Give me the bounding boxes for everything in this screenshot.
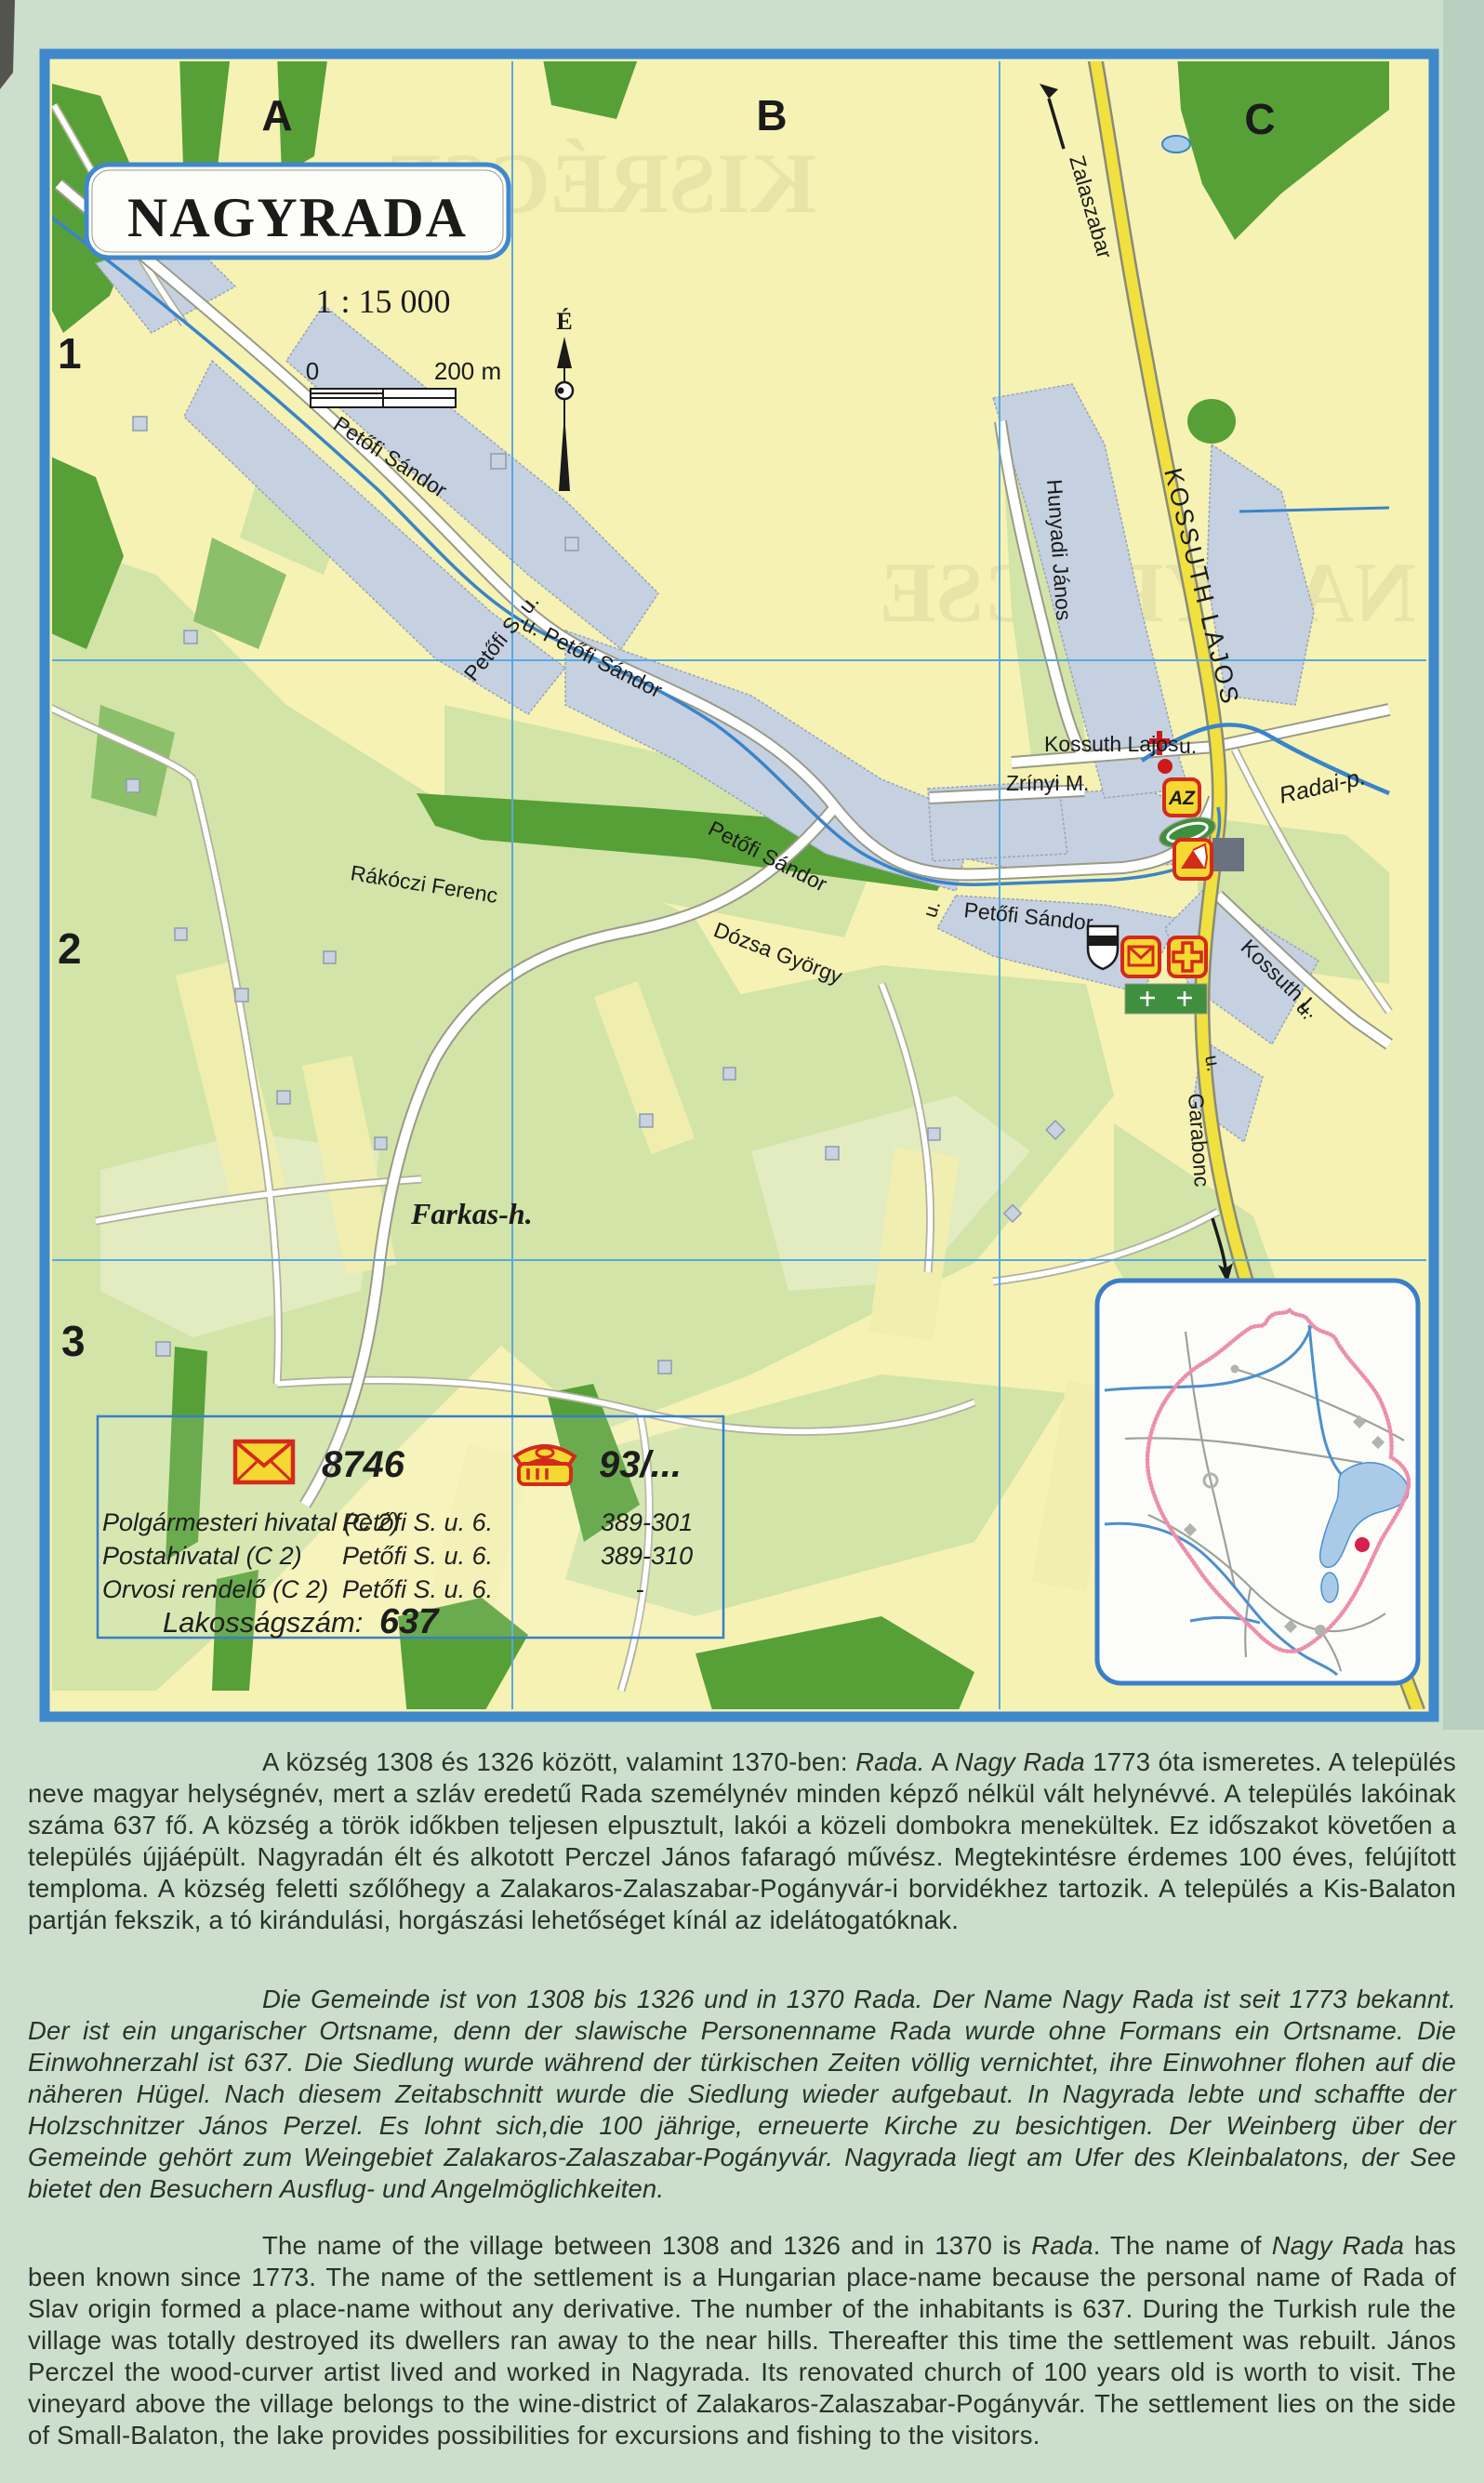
street-label-u-2: u. — [1179, 734, 1197, 758]
north-letter: É — [556, 308, 572, 335]
legend-address: Petőfi S. u. 6. — [342, 1542, 493, 1570]
scale-zero: 0 — [306, 357, 319, 385]
map-title: NAGYRADA — [127, 187, 468, 248]
show-through-right: NAGYRÉCSE — [879, 545, 1416, 640]
grid-col-b: B — [756, 91, 787, 139]
grid-col-a: A — [261, 91, 292, 139]
legend-phone: - — [636, 1575, 644, 1603]
description-hungarian: A község 1308 és 1326 között, valamint 1… — [28, 1746, 1456, 1936]
grid-row-2: 2 — [58, 924, 82, 973]
legend-name: Orvosi rendelő (C 2) — [102, 1575, 328, 1603]
town-hall-icon — [1088, 926, 1118, 969]
church-dot — [1158, 759, 1173, 774]
phone-prefix: 93/... — [599, 1444, 682, 1485]
medical-icon — [1169, 937, 1206, 976]
legend-row-2: Postahivatal (C 2) Petőfi S. u. 6. 389-3… — [102, 1542, 693, 1570]
grid-row-1: 1 — [58, 329, 82, 378]
phone-icon — [515, 1446, 575, 1484]
store-icon: AZ — [1164, 779, 1199, 816]
scan-edge-mark — [0, 0, 15, 89]
postal-envelope-icon — [235, 1441, 293, 1482]
page-edge-strip — [1443, 0, 1484, 1730]
en-nagyrada-italic: Nagy Rada — [1272, 2231, 1404, 2260]
scale-distance: 200 m — [434, 357, 501, 385]
post-office-icon — [1122, 937, 1159, 976]
hu-rada-italic: Rada. — [855, 1747, 924, 1776]
cemetery-icon — [1125, 984, 1207, 1014]
inset-pond — [1321, 1573, 1338, 1602]
title-box: NAGYRADA — [86, 165, 509, 258]
en-text: . The name of — [1093, 2231, 1272, 2260]
legend-name: Postahivatal (C 2) — [102, 1542, 302, 1570]
street-label-kossuth-u: Kossuth Lajos — [1044, 732, 1178, 756]
legend-row-1: Polgármesteri hivatal (C 2) Petőfi S. u.… — [102, 1508, 693, 1536]
legend: 8746 93/... Polgármesteri hivatal (C 2) … — [98, 1416, 723, 1641]
grid-row-3: 3 — [61, 1317, 86, 1365]
hu-text: A — [925, 1747, 955, 1776]
en-rada-italic: Rada — [1031, 2231, 1093, 2260]
street-label-zrinyi: Zrínyi M. — [1006, 771, 1089, 795]
description-german: Die Gemeinde ist von 1308 bis 1326 und i… — [28, 1984, 1456, 2205]
hu-text: A község 1308 és 1326 között, valamint 1… — [262, 1747, 855, 1776]
legend-phone: 389-310 — [601, 1542, 693, 1570]
town-map: KISRÉCSE NAGYRÉCSE — [0, 0, 1484, 1730]
population-label: Lakosságszám: — [163, 1606, 363, 1639]
map-panel: KISRÉCSE NAGYRÉCSE — [45, 48, 1434, 1719]
hu-nagyrada-italic: Nagy Rada — [955, 1747, 1085, 1776]
en-text: The name of the village between 1308 and… — [262, 2231, 1031, 2260]
hill-label: Farkas-h. — [410, 1197, 533, 1230]
postal-code: 8746 — [322, 1444, 405, 1485]
legend-address: Petőfi S. u. 6. — [342, 1575, 493, 1603]
school-building — [1212, 838, 1244, 871]
scale-bar — [311, 389, 456, 407]
legend-phone: 389-301 — [601, 1508, 693, 1536]
inset-location-marker — [1355, 1537, 1370, 1552]
en-text: has been known since 1773. The name of t… — [28, 2231, 1456, 2450]
description-english: The name of the village between 1308 and… — [28, 2230, 1456, 2451]
legend-address: Petőfi S. u. 6. — [342, 1508, 493, 1536]
inset-locator-map — [1097, 1281, 1418, 1683]
scale-ratio: 1 : 15 000 — [315, 283, 450, 320]
school-icon — [1174, 840, 1212, 879]
de-text: Die Gemeinde ist von 1308 bis 1326 und i… — [28, 1985, 1456, 2203]
map-page-top: KISRÉCSE NAGYRÉCSE — [0, 0, 1484, 1730]
grid-col-c: C — [1244, 95, 1275, 143]
store-label: AZ — [1168, 788, 1196, 809]
pond — [1162, 136, 1190, 153]
population-value: 637 — [379, 1602, 440, 1641]
